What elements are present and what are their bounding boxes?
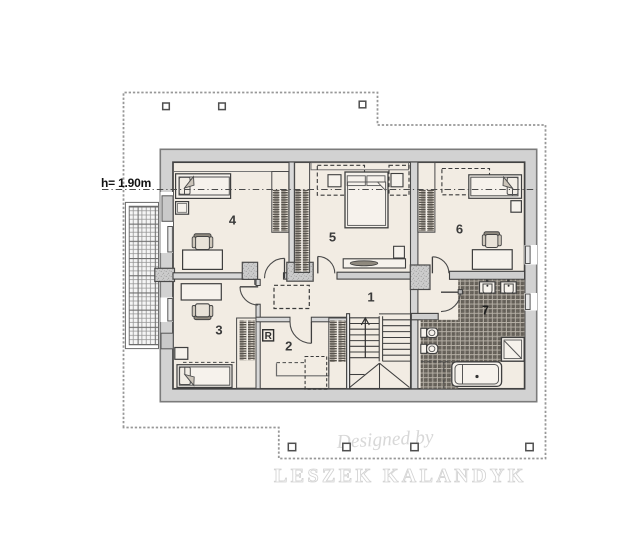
svg-text:6: 6	[456, 222, 463, 237]
svg-text:3: 3	[215, 323, 222, 338]
svg-text:LESZEK KALANDYK: LESZEK KALANDYK	[274, 465, 527, 487]
svg-text:5: 5	[329, 230, 336, 245]
svg-text:R: R	[265, 331, 273, 342]
svg-text:7: 7	[482, 304, 489, 318]
svg-text:1: 1	[367, 290, 374, 305]
svg-text:2: 2	[285, 339, 292, 354]
svg-text:h= 1.90m: h= 1.90m	[101, 176, 151, 190]
svg-text:4: 4	[229, 213, 237, 228]
